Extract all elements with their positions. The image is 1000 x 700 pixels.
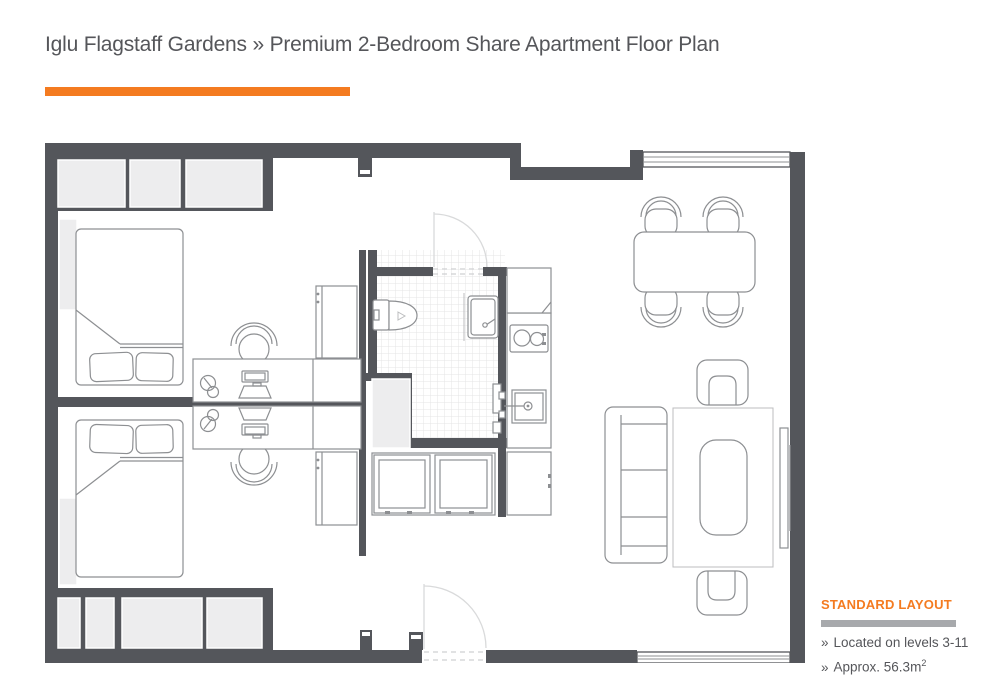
legend-item-superscript: 2 [921,658,926,668]
pillow [89,352,133,382]
bullet-icon: » [821,635,829,650]
desk-chair-1 [231,323,277,364]
dining-chair-3 [641,287,681,327]
dining-chair-2 [703,197,743,237]
bed-1 [76,229,183,385]
bed-2 [76,420,183,577]
pillow [90,424,134,453]
desk-1 [193,359,361,402]
pillow [136,425,174,454]
utility-shaft [372,379,410,448]
wardrobe-1 [316,286,357,358]
entry-door-jamb [409,632,423,650]
wall-pier-bedroom2 [59,498,77,585]
washer [374,455,430,514]
dining-chair-1 [641,197,681,237]
window-bottom [637,652,790,663]
cooktop [510,325,548,352]
sofa [605,407,667,563]
window-top [643,152,790,167]
built-in-closets-bottom [58,598,262,648]
wall-pier-bedroom1 [59,219,77,310]
page-title: Iglu Flagstaff Gardens » Premium 2-Bedro… [45,33,719,57]
armchair-1 [697,360,748,405]
desk-chair-2 [231,444,277,485]
left-wall [45,143,58,663]
dryer [435,455,492,514]
bottom-wall-right [486,650,637,663]
dining-table [634,232,755,292]
legend-item-text: Approx. 56.3m [834,660,922,675]
layout-legend: STANDARD LAYOUT »Located on levels 3-11 … [821,597,986,675]
legend-heading: STANDARD LAYOUT [821,597,986,612]
floor-plan [45,143,805,663]
kitchen [499,268,551,515]
right-wall [790,152,805,663]
wardrobe-2 [316,452,357,525]
title-underline [45,87,350,96]
fridge [507,268,551,313]
laundry-closet [372,453,495,515]
built-in-closets-top [58,160,262,207]
bathroom-wall-bottom [410,438,507,448]
floor-plan-drawing [45,143,805,663]
shower-controls [493,384,501,433]
entry-door [424,584,486,660]
door-pocket-top [358,158,372,177]
legend-item: »Located on levels 3-11 [821,635,986,650]
kitchen-cabinet [507,452,551,515]
bathroom-sink [464,293,498,341]
legend-item-text: Located on levels 3-11 [834,635,969,650]
dining-chair-4 [703,287,743,327]
armchair-2 [697,571,747,615]
legend-item: »Approx. 56.3m2 [821,658,986,675]
page: Iglu Flagstaff Gardens » Premium 2-Bedro… [0,0,1000,700]
recessed-wall [521,167,643,180]
legend-divider-bar [821,620,956,627]
top-wall [45,143,521,158]
tv [780,428,790,548]
pillow [136,353,174,382]
bullet-icon: » [821,660,829,675]
bathroom-wall-top-l [368,267,433,276]
coffee-table [700,440,747,535]
kitchen-sink [499,390,546,423]
